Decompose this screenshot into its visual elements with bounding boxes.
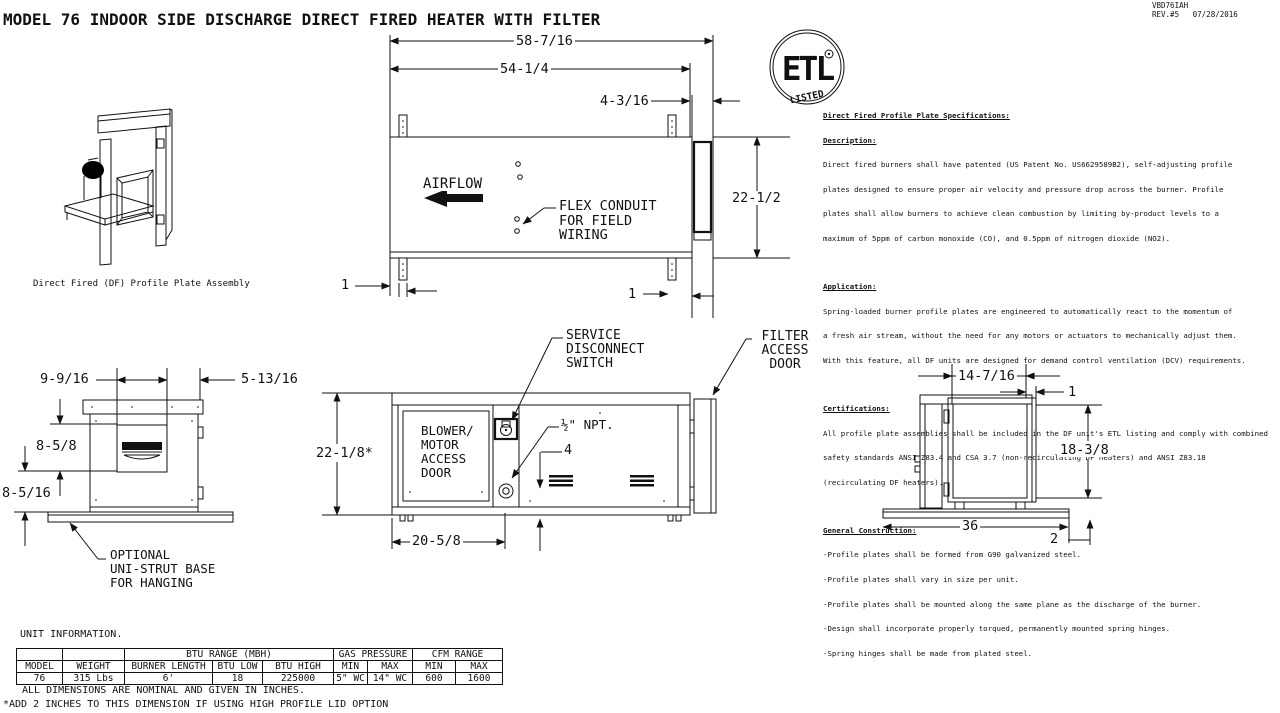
filter-access-door-label: FILTER ACCESS DOOR bbox=[752, 330, 818, 372]
cell-btu-low: 18 bbox=[213, 673, 263, 685]
cell-gas-max: 14" WC bbox=[368, 673, 413, 685]
etl-listed-logo-icon: ETL LISTED bbox=[770, 30, 844, 106]
dim-bracket-right: 1 bbox=[626, 287, 638, 301]
dim-filter-depth: 4-3/16 bbox=[598, 94, 651, 108]
note-high-profile-lid: *ADD 2 INCHES TO THIS DIMENSION IF USING… bbox=[3, 699, 388, 710]
cell-cfm-max: 1600 bbox=[456, 673, 503, 685]
drawing-sheet: ETL LISTED MODEL 76 INDOOR SIDE DISCHARG… bbox=[0, 0, 1280, 713]
cell-burner-length: 6' bbox=[125, 673, 213, 685]
dim-bracket-left: 1 bbox=[339, 278, 351, 292]
table-group-header-row: BTU RANGE (MBH) GAS PRESSURE CFM RANGE bbox=[17, 649, 503, 661]
dim-side-four: 4 bbox=[562, 443, 574, 457]
dim-unit-height: 22-1/2 bbox=[730, 191, 783, 205]
side-view-drawing bbox=[322, 338, 758, 551]
empty-cell bbox=[63, 649, 125, 661]
col-header: MIN bbox=[413, 661, 456, 673]
dim-left-top-left: 9-9/16 bbox=[38, 372, 91, 386]
dim-right-base: 36 bbox=[960, 519, 980, 533]
dim-body-width: 54-1/4 bbox=[498, 62, 551, 76]
cell-cfm-min: 600 bbox=[413, 673, 456, 685]
dim-right-base-offset: 2 bbox=[1048, 532, 1060, 546]
col-header: MIN bbox=[334, 661, 368, 673]
sheet-title: MODEL 76 INDOOR SIDE DISCHARGE DIRECT FI… bbox=[3, 10, 600, 29]
service-disconnect-label: SERVICE DISCONNECT SWITCH bbox=[566, 329, 644, 371]
specs-section-certifications: Certifications: All profile plate assemb… bbox=[823, 389, 1280, 504]
dim-left-mid: 8-5/8 bbox=[34, 439, 79, 453]
col-header: BTU LOW bbox=[213, 661, 263, 673]
top-view-drawing bbox=[355, 35, 790, 318]
doc-number: VBD76IAH bbox=[1152, 1, 1188, 10]
airflow-label: AIRFLOW bbox=[423, 177, 482, 191]
specs-title: Direct Fired Profile Plate Specification… bbox=[823, 112, 1280, 120]
unit-info-table: BTU RANGE (MBH) GAS PRESSURE CFM RANGE M… bbox=[16, 648, 503, 685]
col-header: WEIGHT bbox=[63, 661, 125, 673]
revision-text: REV.#5 07/28/2016 bbox=[1152, 10, 1238, 19]
dim-right-height: 18-3/8 bbox=[1058, 443, 1111, 457]
group-header-gas: GAS PRESSURE bbox=[334, 649, 413, 661]
specs-section-description: Description: Direct fired burners shall … bbox=[823, 120, 1280, 259]
cell-weight: 315 Lbs bbox=[63, 673, 125, 685]
specs-section-application: Application: Spring-loaded burner profil… bbox=[823, 267, 1280, 382]
col-header: MAX bbox=[456, 661, 503, 673]
blower-motor-door-label: BLOWER/ MOTOR ACCESS DOOR bbox=[421, 424, 474, 480]
left-end-view-drawing bbox=[14, 368, 235, 559]
group-header-cfm: CFM RANGE bbox=[413, 649, 503, 661]
dim-overall-width: 58-7/16 bbox=[514, 34, 575, 48]
col-header: MODEL bbox=[17, 661, 63, 673]
dim-left-lower: 8-5/16 bbox=[0, 486, 53, 500]
table-header-row: MODEL WEIGHT BURNER LENGTH BTU LOW BTU H… bbox=[17, 661, 503, 673]
note-dimensions: ALL DIMENSIONS ARE NOMINAL AND GIVEN IN … bbox=[22, 685, 305, 696]
dim-side-height: 22-1/8* bbox=[314, 446, 375, 460]
dim-left-top-right: 5-13/16 bbox=[239, 372, 300, 386]
cell-btu-high: 225000 bbox=[263, 673, 334, 685]
iso-view-caption: Direct Fired (DF) Profile Plate Assembly bbox=[33, 279, 250, 289]
dim-right-door: 1 bbox=[1066, 385, 1078, 399]
empty-cell bbox=[17, 649, 63, 661]
etl-letters: ETL bbox=[782, 49, 835, 88]
unit-info-title: UNIT INFORMATION. bbox=[20, 629, 122, 640]
npt-label: ½" NPT. bbox=[561, 418, 614, 432]
table-data-row: 76 315 Lbs 6' 18 225000 5" WC 14" WC 600… bbox=[17, 673, 503, 685]
col-header: MAX bbox=[368, 661, 413, 673]
cell-model: 76 bbox=[17, 673, 63, 685]
uni-strut-base-label: OPTIONAL UNI-STRUT BASE FOR HANGING bbox=[110, 548, 215, 590]
iso-view-drawing bbox=[65, 109, 172, 265]
dim-right-width: 14-7/16 bbox=[956, 369, 1017, 383]
profile-plate-specifications: Direct Fired Profile Plate Specification… bbox=[823, 112, 1280, 674]
group-header-btu: BTU RANGE (MBH) bbox=[125, 649, 334, 661]
dim-side-burner: 20-5/8 bbox=[410, 534, 463, 548]
col-header: BURNER LENGTH bbox=[125, 661, 213, 673]
flex-conduit-label: FLEX CONDUIT FOR FIELD WIRING bbox=[559, 199, 657, 243]
cell-gas-min: 5" WC bbox=[334, 673, 368, 685]
col-header: BTU HIGH bbox=[263, 661, 334, 673]
